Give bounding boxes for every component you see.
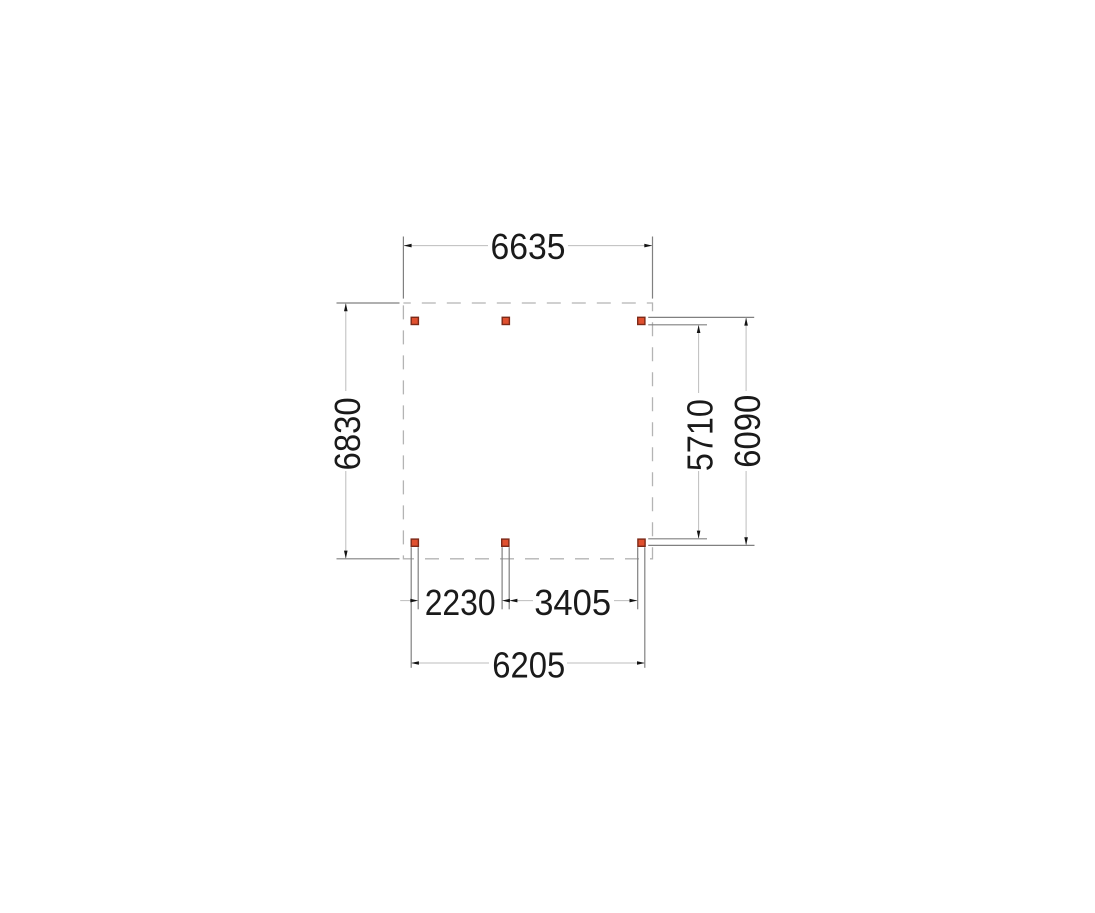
svg-text:6090: 6090 bbox=[727, 395, 768, 468]
svg-text:2230: 2230 bbox=[425, 582, 496, 623]
svg-text:5710: 5710 bbox=[680, 399, 721, 471]
svg-text:6205: 6205 bbox=[492, 644, 565, 685]
svg-text:3405: 3405 bbox=[534, 582, 611, 623]
svg-text:6830: 6830 bbox=[327, 397, 368, 470]
svg-text:6635: 6635 bbox=[491, 226, 566, 267]
